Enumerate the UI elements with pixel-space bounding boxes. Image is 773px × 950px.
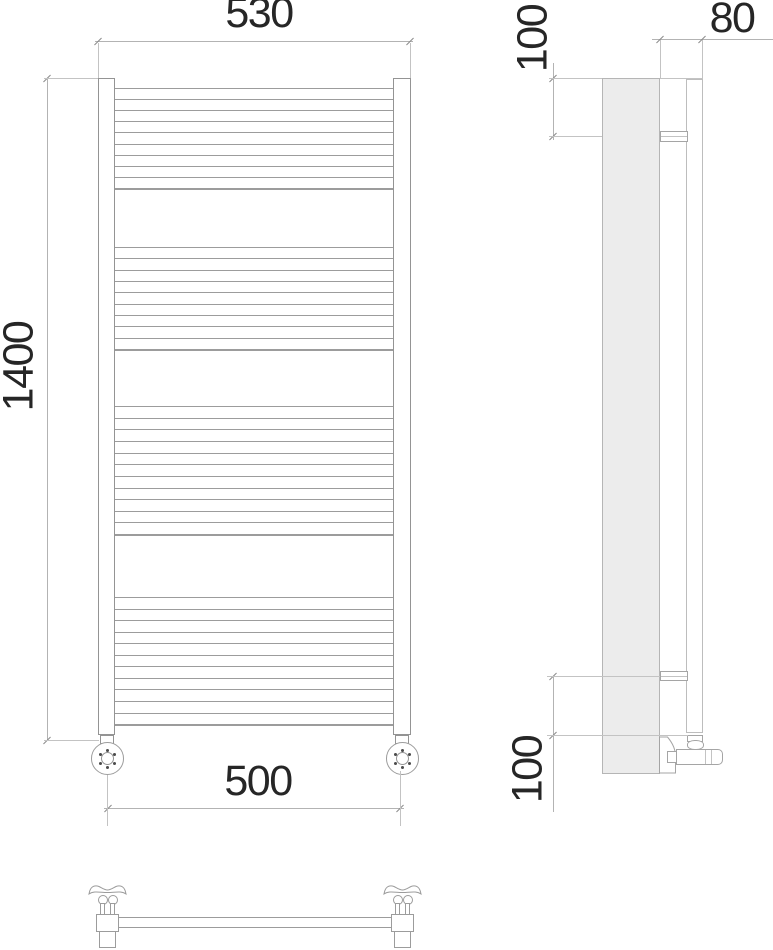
valve-block <box>96 914 119 932</box>
dim-line-100-top <box>553 63 554 140</box>
valve-tail <box>99 931 116 948</box>
dim-line-530 <box>95 41 413 42</box>
radiator-rung <box>115 724 393 726</box>
extension-line <box>547 735 688 736</box>
extension-line <box>410 43 411 78</box>
dim-label-80: 80 <box>672 0 773 40</box>
radiator-rung <box>115 464 393 465</box>
radiator-rung <box>115 338 393 339</box>
front-rail-right <box>393 78 411 735</box>
radiator-rung <box>115 678 393 679</box>
dim-label-100-bottom: 100 <box>507 710 550 830</box>
radiator-rung <box>115 406 393 407</box>
bottom-tube <box>117 917 393 928</box>
radiator-rung <box>115 499 393 500</box>
radiator-rung <box>115 701 393 702</box>
extension-line <box>547 676 660 677</box>
valve-nub-side <box>667 751 677 763</box>
foot-valve-right <box>386 742 419 775</box>
radiator-rung <box>115 88 393 89</box>
valve-body-side <box>676 749 723 765</box>
side-rail-tube <box>686 79 703 733</box>
radiator-rung <box>115 655 393 656</box>
radiator-rung <box>115 597 393 598</box>
radiator-rung <box>115 713 393 714</box>
technical-drawing-canvas: 530 1400 <box>0 0 773 950</box>
radiator-rung <box>115 418 393 419</box>
radiator-rung <box>115 270 393 271</box>
radiator-rung <box>115 349 393 351</box>
radiator-rung <box>115 511 393 512</box>
bracket-midline <box>661 676 687 677</box>
radiator-rung <box>115 315 393 316</box>
foot-valve-left <box>91 742 124 775</box>
radiator-rung <box>115 476 393 477</box>
radiator-rung <box>115 304 393 305</box>
radiator-rung <box>115 144 393 145</box>
radiator-rung <box>115 166 393 167</box>
radiator-rung <box>115 99 393 100</box>
radiator-rung <box>115 632 393 633</box>
radiator-rung <box>115 441 393 442</box>
radiator-rung <box>115 666 393 667</box>
extension-line <box>98 43 99 78</box>
extension-line <box>107 775 108 826</box>
dim-line-100-bottom <box>553 676 554 812</box>
radiator-rung <box>115 522 393 523</box>
extension-line <box>702 40 703 79</box>
dim-label-1400: 1400 <box>0 307 41 427</box>
radiator-rung <box>115 155 393 156</box>
wall-bracket-plate <box>383 883 422 895</box>
radiator-rung <box>115 177 393 178</box>
radiator-rung <box>115 292 393 293</box>
dim-line-500 <box>104 808 404 809</box>
radiator-rung <box>115 110 393 111</box>
radiator-rung <box>115 689 393 690</box>
dim-line-1400 <box>47 78 48 740</box>
dim-line-80 <box>652 39 773 40</box>
extension-line <box>44 740 99 741</box>
radiator-rung <box>115 132 393 133</box>
radiator-rung <box>115 620 393 621</box>
radiator-rung <box>115 534 393 536</box>
dim-label-500: 500 <box>198 760 318 803</box>
extension-line <box>660 40 661 78</box>
side-panel <box>602 78 660 774</box>
radiator-rung <box>115 643 393 644</box>
radiator-rung <box>115 429 393 430</box>
radiator-rung <box>115 121 393 122</box>
wall-bracket-plate <box>88 883 127 895</box>
radiator-rung <box>115 247 393 248</box>
radiator-rung <box>115 281 393 282</box>
valve-tail <box>394 931 411 948</box>
extension-line <box>400 771 401 826</box>
radiator-rung <box>115 453 393 454</box>
radiator-rung <box>115 488 393 489</box>
bracket-midline <box>661 136 687 137</box>
front-rail-left <box>98 78 115 735</box>
dim-label-100-top: 100 <box>512 0 555 99</box>
radiator-rung <box>115 188 393 190</box>
valve-block <box>391 914 414 932</box>
valve-seam <box>705 750 706 764</box>
radiator-rung <box>115 258 393 259</box>
valve-seam <box>711 750 712 764</box>
dim-label-530: 530 <box>199 0 319 35</box>
radiator-rung <box>115 326 393 327</box>
radiator-rung <box>115 609 393 610</box>
